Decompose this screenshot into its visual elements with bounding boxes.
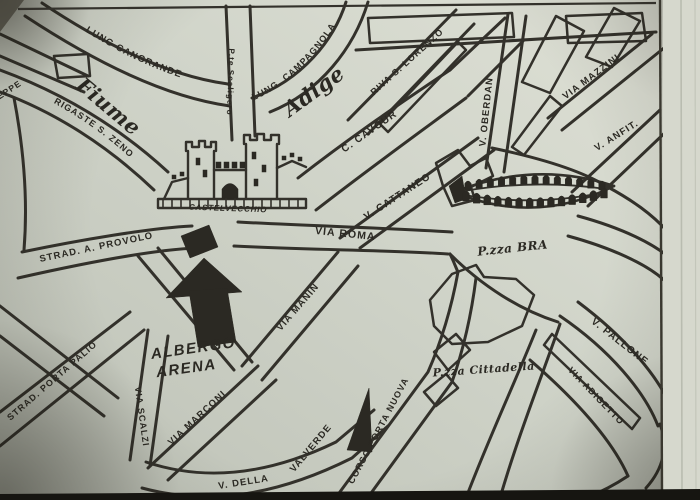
verona-street-map-photo: SEPPEP.te ScaligeroRIVA S. LORENZOV. OBE… xyxy=(0,0,700,500)
map-canvas: SEPPEP.te ScaligeroRIVA S. LORENZOV. OBE… xyxy=(0,0,700,500)
page-fold-line-1 xyxy=(681,0,682,491)
photo-shadow-top-right xyxy=(0,0,700,500)
